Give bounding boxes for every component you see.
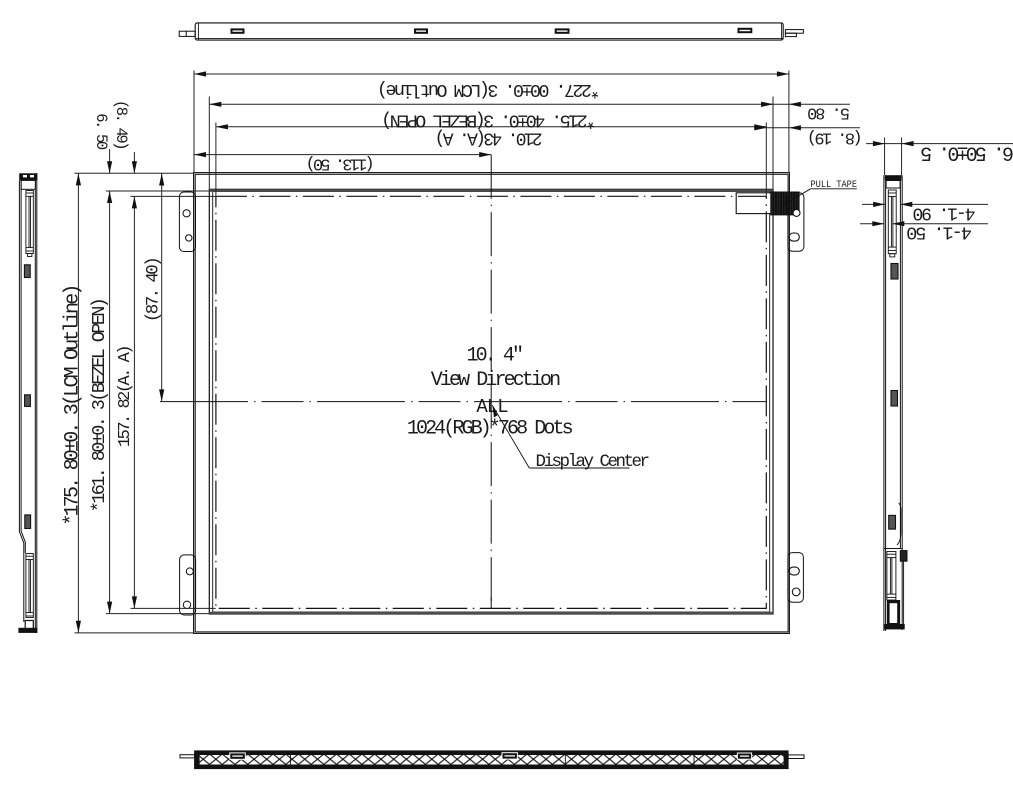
svg-text:4-1. 50: 4-1. 50 — [907, 222, 972, 243]
svg-text:*161. 80±0. 3(BEZEL OPEN): *161. 80±0. 3(BEZEL OPEN) — [89, 300, 110, 513]
svg-text:*175. 80±0. 3(LCM Outline): *175. 80±0. 3(LCM Outline) — [62, 286, 85, 525]
svg-text:*215. 40±0. 3(BEZEL OPEN): *215. 40±0. 3(BEZEL OPEN) — [384, 110, 597, 131]
svg-text:*227. 00±0. 3(LCM Outline): *227. 00±0. 3(LCM Outline) — [379, 79, 600, 100]
svg-text:10. 4″: 10. 4″ — [466, 345, 522, 368]
svg-text:4-1. 90: 4-1. 90 — [913, 203, 975, 223]
svg-text:ALL: ALL — [476, 396, 508, 418]
svg-text:157. 82(A. A): 157. 82(A. A) — [116, 347, 135, 447]
svg-text:Display Center: Display Center — [535, 452, 648, 472]
svg-text:(87. 40): (87. 40) — [144, 259, 164, 322]
svg-text:(113. 50): (113. 50) — [308, 154, 375, 173]
svg-text:6. 50±0. 5: 6. 50±0. 5 — [921, 141, 1013, 164]
svg-text:6. 50: 6. 50 — [92, 113, 110, 150]
svg-text:(8. 49): (8. 49) — [112, 100, 130, 148]
svg-text:210. 43(A. A): 210. 43(A. A) — [437, 128, 542, 148]
svg-text:1024(RGB)*768 Dots: 1024(RGB)*768 Dots — [407, 418, 573, 441]
svg-text:View Direction: View Direction — [431, 369, 560, 392]
svg-text:5. 80: 5. 80 — [807, 103, 850, 122]
svg-text:(8. 19): (8. 19) — [809, 128, 863, 147]
